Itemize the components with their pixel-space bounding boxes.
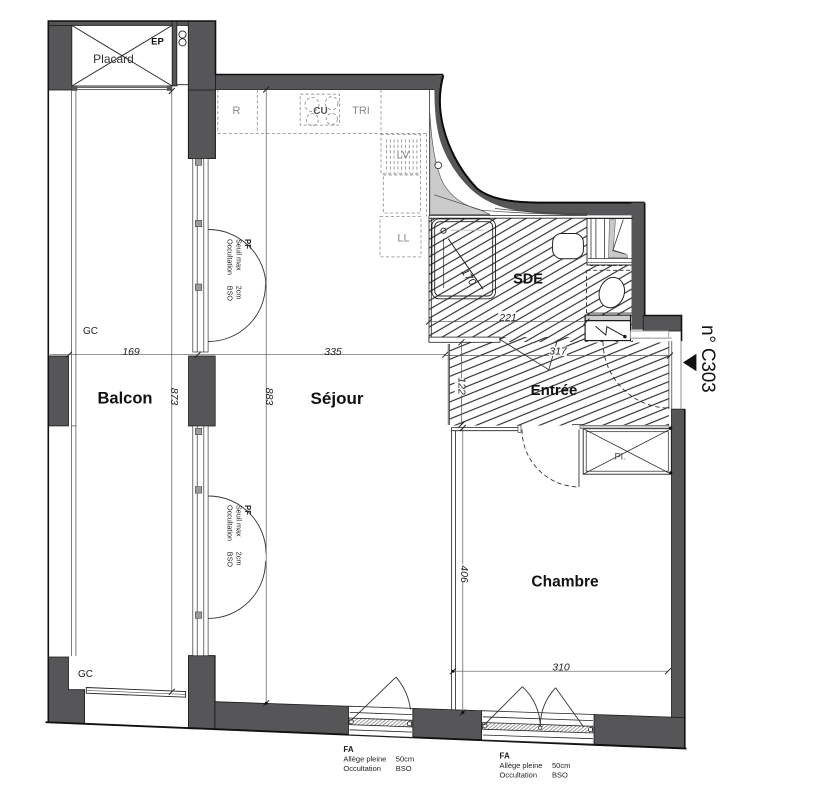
svg-text:50cm: 50cm (552, 761, 570, 770)
svg-text:169: 169 (122, 346, 140, 358)
svg-text:221: 221 (498, 312, 517, 324)
svg-text:BSO: BSO (226, 552, 235, 568)
svg-text:LL: LL (397, 233, 409, 245)
svg-text:Occultation: Occultation (500, 771, 538, 780)
svg-text:TRI: TRI (352, 105, 370, 117)
svg-text:FA: FA (343, 745, 353, 754)
svg-text:Allège pleine: Allège pleine (343, 755, 386, 764)
svg-text:SDE: SDE (513, 272, 543, 288)
svg-text:PF: PF (243, 505, 252, 515)
svg-text:Occultation: Occultation (343, 764, 381, 773)
svg-text:Entrée: Entrée (531, 382, 578, 399)
svg-text:Allège pleine: Allège pleine (500, 761, 543, 770)
svg-text:R: R (233, 105, 241, 117)
svg-text:LV: LV (397, 150, 410, 162)
svg-text:406: 406 (458, 565, 470, 583)
svg-text:50cm: 50cm (396, 755, 414, 764)
svg-text:BSO: BSO (396, 764, 412, 773)
svg-text:BSO: BSO (552, 771, 568, 780)
svg-text:Séjour: Séjour (311, 389, 364, 408)
svg-text:EP: EP (151, 37, 164, 48)
svg-text:n° C303: n° C303 (697, 325, 718, 392)
svg-text:335: 335 (324, 346, 342, 358)
svg-text:Seuil max: Seuil max (234, 239, 243, 271)
svg-text:CU: CU (313, 106, 327, 117)
svg-text:Seuil max: Seuil max (234, 505, 243, 537)
svg-text:Occultation: Occultation (226, 239, 235, 275)
svg-text:PF: PF (243, 239, 252, 249)
svg-text:873: 873 (168, 388, 180, 406)
svg-text:317: 317 (549, 346, 568, 358)
svg-text:Pl.: Pl. (614, 452, 625, 463)
svg-text:Placard: Placard (93, 52, 134, 66)
svg-text:FA: FA (500, 752, 510, 761)
svg-text:Occultation: Occultation (226, 505, 235, 541)
svg-text:BSO: BSO (226, 286, 235, 302)
svg-text:GC: GC (83, 326, 98, 337)
svg-text:Chambre: Chambre (531, 574, 599, 591)
svg-text:2cm: 2cm (234, 286, 243, 300)
svg-text:122: 122 (456, 377, 468, 395)
svg-text:310: 310 (552, 661, 570, 673)
svg-text:Balcon: Balcon (97, 390, 152, 408)
svg-text:883: 883 (263, 388, 275, 406)
svg-text:2cm: 2cm (234, 552, 243, 566)
svg-text:GC: GC (78, 669, 93, 680)
